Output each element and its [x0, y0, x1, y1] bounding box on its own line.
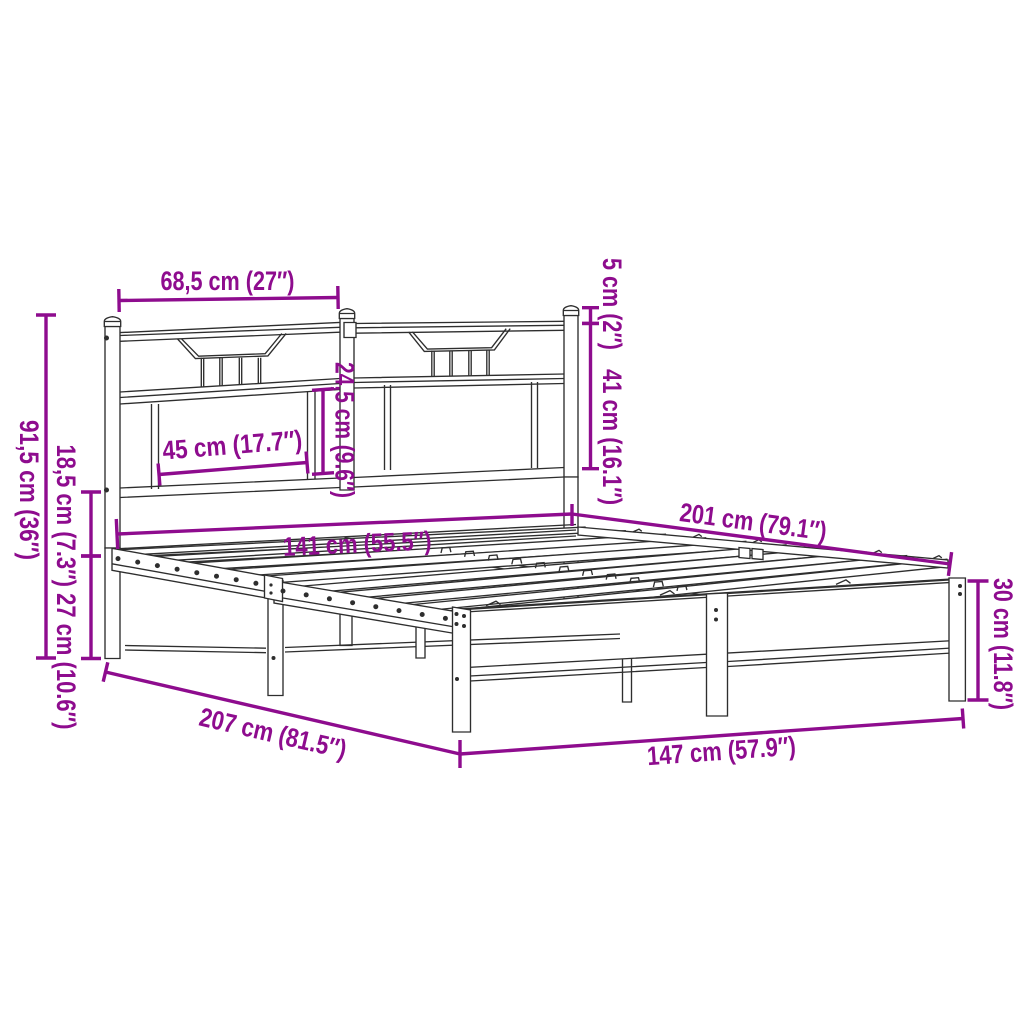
svg-text:18,5 cm (7.3″) 27 cm (10.6″): 18,5 cm (7.3″) 27 cm (10.6″) — [51, 445, 81, 730]
svg-text:91,5 cm (36″): 91,5 cm (36″) — [14, 420, 44, 560]
svg-text:24,5 cm (9.6″): 24,5 cm (9.6″) — [330, 362, 360, 498]
svg-text:68,5 cm (27″): 68,5 cm (27″) — [161, 266, 295, 296]
svg-text:41 cm (16.1″): 41 cm (16.1″) — [597, 369, 627, 505]
svg-text:5 cm (2″): 5 cm (2″) — [597, 258, 627, 350]
svg-text:30 cm (11.8″): 30 cm (11.8″) — [988, 578, 1018, 710]
